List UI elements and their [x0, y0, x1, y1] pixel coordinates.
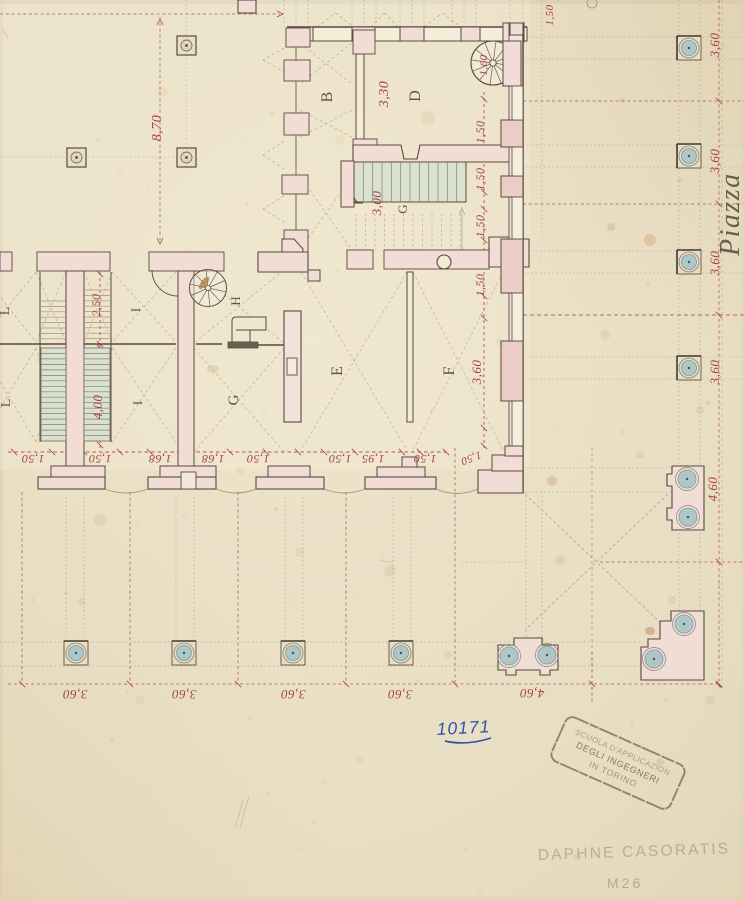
svg-text:G: G — [395, 204, 410, 213]
svg-text:M26: M26 — [607, 875, 643, 891]
svg-text:F: F — [441, 366, 458, 375]
svg-text:L: L — [0, 307, 13, 316]
svg-text:3,60: 3,60 — [63, 687, 89, 702]
svg-text:1,50: 1,50 — [89, 452, 112, 466]
svg-text:3,60: 3,60 — [469, 360, 484, 386]
svg-text:3,60: 3,60 — [281, 687, 307, 702]
svg-text:1,50: 1,50 — [473, 168, 487, 191]
svg-text:1,50: 1,50 — [414, 452, 437, 466]
svg-text:3,60: 3,60 — [707, 360, 722, 386]
svg-text:3,60: 3,60 — [707, 149, 722, 175]
svg-text:1,50: 1,50 — [22, 452, 45, 466]
svg-text:3,60: 3,60 — [388, 687, 414, 702]
svg-text:10171: 10171 — [436, 716, 491, 739]
svg-text:D: D — [407, 90, 424, 102]
svg-text:4,60: 4,60 — [705, 477, 720, 502]
svg-text:I: I — [128, 308, 143, 312]
svg-text:3,30: 3,30 — [377, 81, 392, 109]
svg-text:1,68: 1,68 — [202, 452, 225, 466]
svg-text:1,50: 1,50 — [473, 274, 487, 297]
svg-text:1,68: 1,68 — [149, 452, 172, 466]
svg-text:8,70: 8,70 — [150, 115, 165, 142]
svg-text:1,50: 1,50 — [329, 452, 352, 466]
svg-text:4,00: 4,00 — [90, 395, 105, 420]
svg-text:2,50: 2,50 — [89, 294, 103, 317]
svg-text:Piazza: Piazza — [715, 172, 744, 257]
svg-text:H: H — [228, 296, 243, 305]
svg-text:1,95: 1,95 — [362, 452, 385, 466]
svg-text:3,60: 3,60 — [172, 687, 198, 702]
svg-text:1,60: 1,60 — [478, 54, 490, 75]
svg-text:1,50: 1,50 — [473, 215, 487, 238]
svg-text:4,60: 4,60 — [520, 686, 545, 701]
svg-text:E: E — [329, 366, 346, 376]
svg-text:L: L — [0, 399, 14, 408]
svg-text:I: I — [130, 401, 145, 405]
svg-text:1,50: 1,50 — [473, 121, 487, 144]
svg-text:3,00: 3,00 — [369, 191, 384, 217]
svg-text:3,60: 3,60 — [707, 33, 722, 59]
svg-text:1,50: 1,50 — [247, 452, 270, 466]
svg-text:B: B — [319, 92, 336, 103]
svg-text:1,50: 1,50 — [544, 4, 556, 25]
svg-text:G: G — [226, 394, 242, 405]
